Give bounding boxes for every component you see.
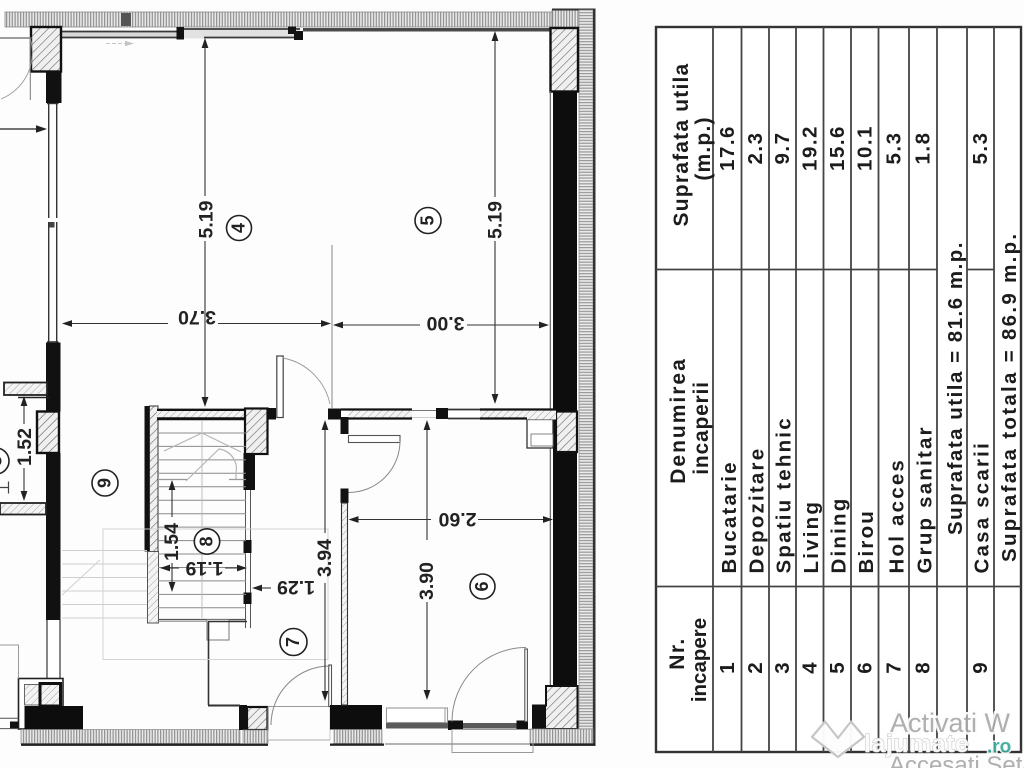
svg-text:2: 2	[744, 662, 767, 673]
svg-text:6: 6	[853, 662, 876, 673]
svg-text:3.00: 3.00	[426, 312, 464, 334]
svg-text:3.94: 3.94	[314, 539, 336, 577]
svg-text:9.7: 9.7	[771, 132, 794, 165]
svg-text:8: 8	[912, 662, 935, 673]
svg-text:5: 5	[418, 215, 438, 225]
svg-text:1.52: 1.52	[14, 428, 36, 466]
svg-text:Accesati Seta: Accesati Seta	[889, 752, 1024, 768]
svg-text:Spatiu tehnic: Spatiu tehnic	[773, 416, 796, 573]
svg-text:Hol acces: Hol acces	[886, 458, 909, 574]
svg-text:incapere: incapere	[688, 618, 711, 702]
svg-text:Dining: Dining	[828, 497, 851, 574]
svg-text:Nr.: Nr.	[666, 637, 689, 670]
svg-text:7: 7	[283, 637, 303, 647]
svg-text:3.90: 3.90	[416, 562, 438, 600]
svg-text:3.70: 3.70	[178, 306, 216, 328]
svg-text:19.2: 19.2	[798, 125, 821, 171]
svg-text:(m.p.): (m.p.)	[692, 116, 715, 180]
svg-text:2.60: 2.60	[438, 508, 476, 530]
svg-text:incaperii: incaperii	[690, 381, 713, 475]
svg-text:17.6: 17.6	[716, 125, 739, 171]
svg-text:Living: Living	[800, 500, 823, 574]
svg-text:5.3: 5.3	[969, 132, 992, 165]
svg-text:Birou: Birou	[855, 509, 878, 574]
svg-text:Grup sanitar: Grup sanitar	[914, 425, 937, 573]
svg-text:1.8: 1.8	[912, 132, 935, 165]
svg-text:1.54: 1.54	[161, 523, 183, 561]
svg-text:9: 9	[95, 478, 115, 488]
svg-text:4: 4	[229, 223, 249, 233]
svg-text:1.19: 1.19	[185, 557, 223, 579]
svg-text:Suprafata totala = 86.9 m.p.: Suprafata totala = 86.9 m.p.	[998, 232, 1021, 562]
svg-text:Denumirea: Denumirea	[667, 357, 690, 484]
svg-text:8: 8	[197, 536, 217, 546]
svg-text:5.19: 5.19	[196, 200, 218, 238]
svg-text:10.1: 10.1	[853, 125, 876, 171]
svg-text:1: 1	[716, 662, 739, 673]
svg-text:3: 3	[771, 662, 794, 673]
svg-text:2.3: 2.3	[744, 132, 767, 165]
svg-text:15.6: 15.6	[826, 125, 849, 171]
svg-text:Suprafata utila = 81.6 m.p.: Suprafata utila = 81.6 m.p.	[944, 241, 967, 535]
svg-text:6: 6	[472, 581, 492, 591]
svg-text:Casa scarii: Casa scarii	[971, 441, 994, 573]
svg-text:Bucatarie: Bucatarie	[718, 460, 741, 573]
svg-text:5.3: 5.3	[882, 132, 905, 165]
svg-text:Depozitare: Depozitare	[746, 447, 769, 574]
svg-text:3: 3	[0, 456, 6, 466]
svg-text:7: 7	[882, 662, 905, 673]
svg-text:1.29: 1.29	[277, 576, 315, 598]
svg-text:4: 4	[798, 662, 821, 674]
svg-text:5.19: 5.19	[485, 201, 507, 239]
svg-text:Suprafata utila: Suprafata utila	[670, 63, 693, 227]
svg-text:5: 5	[826, 662, 849, 673]
svg-text:9: 9	[969, 662, 992, 673]
